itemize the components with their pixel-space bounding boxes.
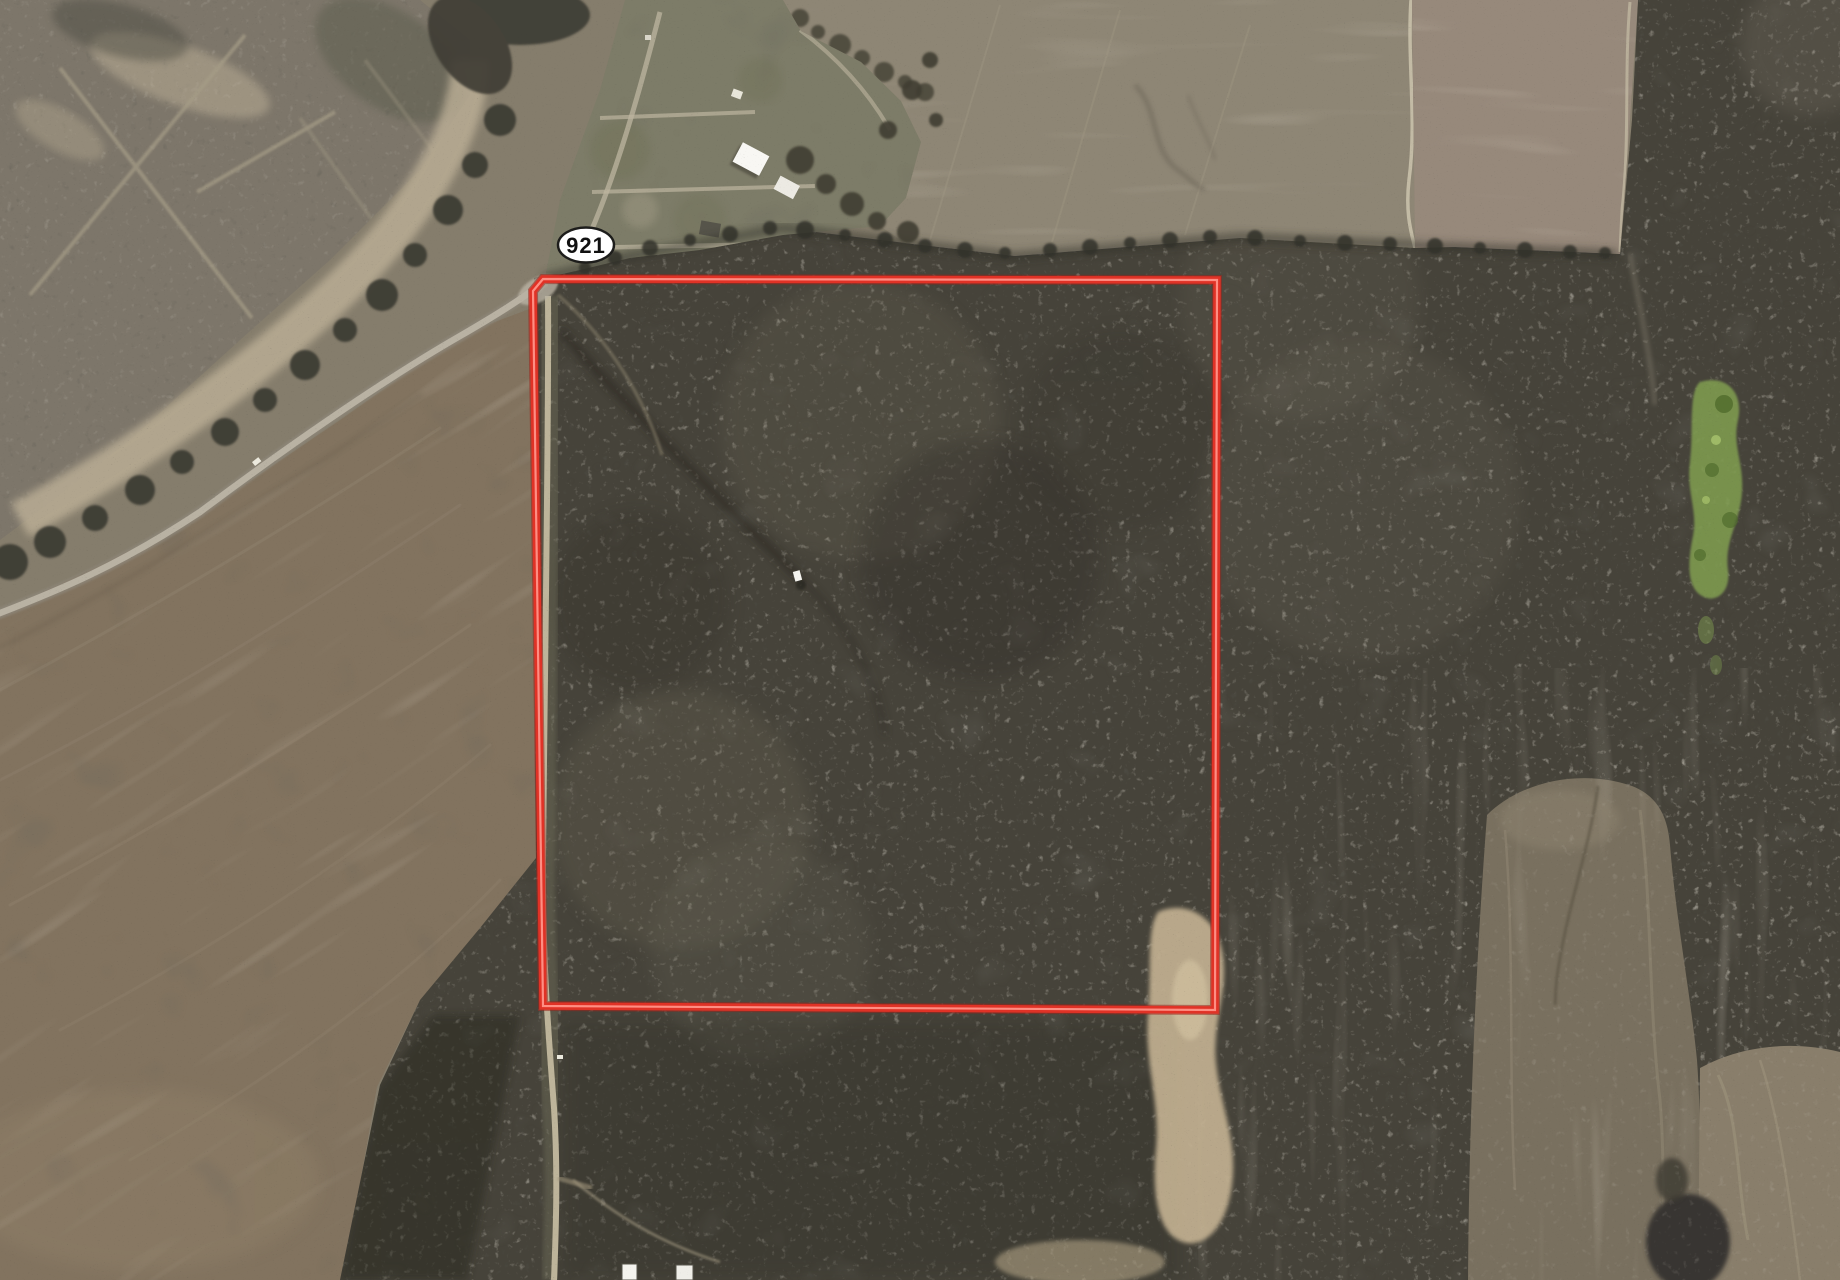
route-921-shield: 921 [558,228,614,263]
satellite-map-view: 921 [0,0,1840,1280]
route-shield-label: 921 [566,233,606,258]
satellite-canvas: 921 [0,0,1840,1280]
satellite-imagery [0,0,1840,1280]
photo-grain [0,0,1840,1280]
